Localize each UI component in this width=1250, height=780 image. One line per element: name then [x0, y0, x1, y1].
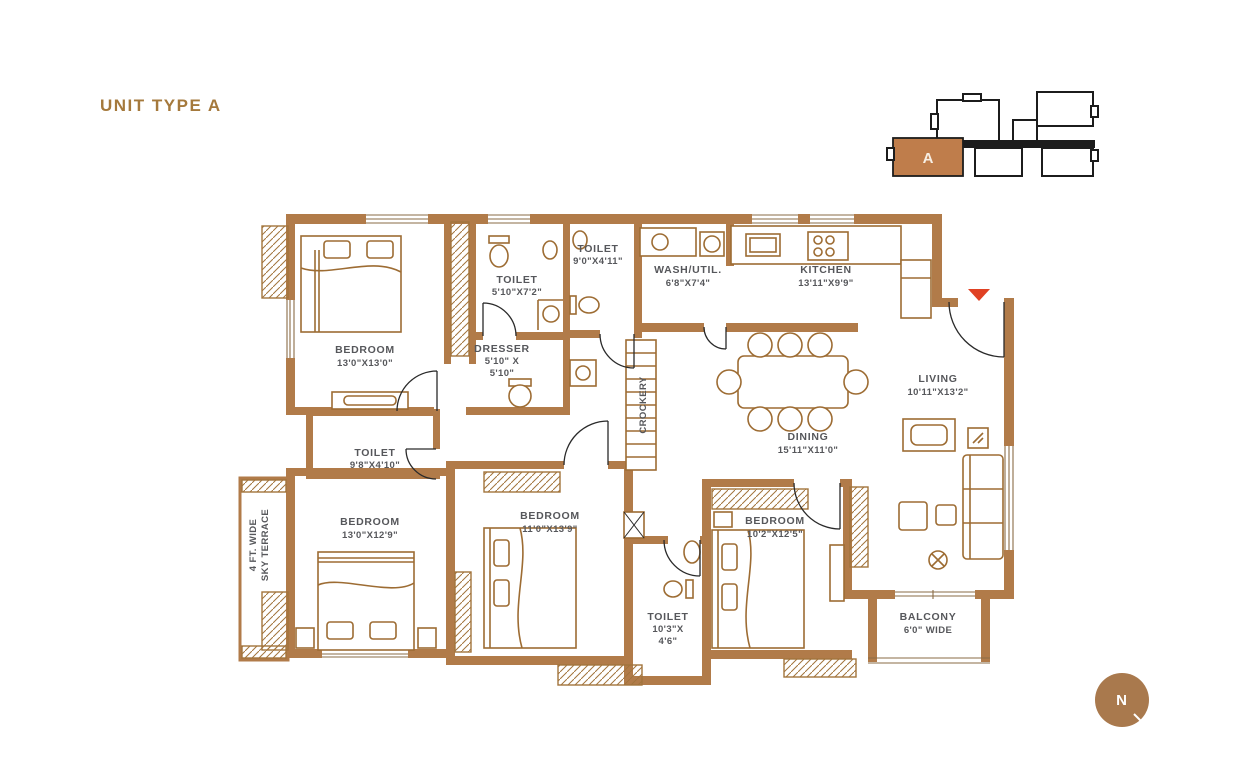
- room-dims-kitchen: 13'11"X9'9": [798, 278, 853, 289]
- room-dims-dresser-2: 5'10": [490, 368, 515, 379]
- wash-counter: [640, 228, 724, 256]
- room-dims-bedroom-4: 10'2"X12'5": [747, 529, 803, 540]
- wall: [446, 461, 564, 469]
- room-label-toilet-1: TOILET: [496, 274, 537, 286]
- wall: [306, 472, 440, 479]
- room-label-bedroom-4: BEDROOM: [745, 515, 805, 527]
- ledge-hatch: [262, 226, 288, 298]
- sliding-door: [895, 590, 975, 599]
- living-art-square: [968, 428, 988, 448]
- wall: [624, 461, 633, 685]
- room-dims-bedroom-3: 11'0"X13'9": [522, 524, 577, 535]
- wall: [516, 332, 570, 340]
- north-compass: N: [1095, 673, 1149, 727]
- living-tv-console: [903, 419, 955, 451]
- wall: [306, 409, 440, 416]
- wall: [563, 332, 570, 415]
- floor-plan-svg: A: [0, 0, 1250, 780]
- room-label-toilet-2: TOILET: [577, 243, 618, 255]
- dining-chair: [778, 333, 802, 357]
- floor-plan-page: UNIT TYPE A A: [0, 0, 1250, 780]
- vanity-basin: [570, 360, 596, 386]
- entry-marker: [968, 289, 990, 301]
- wall: [932, 298, 958, 307]
- wall: [469, 214, 476, 364]
- door-arc: [564, 421, 608, 465]
- wall: [702, 479, 794, 487]
- room-dims-toilet-4-2: 4'6": [659, 636, 678, 647]
- dining-chair: [748, 407, 772, 431]
- wall: [840, 479, 852, 487]
- main-entry-door-arc: [949, 302, 1004, 357]
- wall: [868, 598, 877, 662]
- ledge-hatch: [784, 659, 856, 677]
- key-plan-tab: [887, 148, 894, 160]
- room-dims-toilet-2: 9'0"X4'11": [573, 256, 623, 267]
- dining-table: [717, 333, 868, 431]
- room-label-balcony: BALCONY: [900, 611, 957, 623]
- compass-label: N: [1116, 692, 1128, 709]
- key-plan-corridor: [962, 140, 1095, 148]
- key-plan-unit-label: A: [923, 150, 934, 167]
- dining-chair: [778, 407, 802, 431]
- wall: [975, 590, 1014, 599]
- key-plan-block: [975, 148, 1022, 176]
- room-dims-dining: 15'11"X11'0": [778, 445, 839, 456]
- room-label-wash-util: WASH/UTIL.: [654, 264, 722, 276]
- bedroom-3-bed: [484, 528, 576, 648]
- living-coffee-table: [899, 502, 956, 530]
- room-label-toilet-3: TOILET: [354, 447, 395, 459]
- dresser-stool: [509, 379, 531, 407]
- wall: [444, 214, 451, 364]
- ledge-hatch: [558, 665, 642, 685]
- room-dims-bedroom-1: 13'0"X13'0": [337, 358, 393, 369]
- key-plan-block: [1042, 148, 1093, 176]
- dining-chair: [844, 370, 868, 394]
- room-label-dresser: DRESSER: [474, 343, 530, 355]
- room-dims-toilet-3: 9'8"X4'10": [350, 460, 400, 471]
- room-dims-wash-util: 6'8"X7'4": [666, 278, 711, 289]
- bedroom-1-bed: [301, 236, 401, 332]
- key-plan-block: [1037, 92, 1093, 126]
- wall: [700, 536, 709, 544]
- wardrobe-hatch: [484, 472, 560, 492]
- bedroom-4-dresser: [830, 545, 844, 601]
- room-dims-living: 10'11"X13'2": [907, 387, 968, 398]
- wall: [563, 214, 570, 340]
- room-label-sky-terrace-2: SKY TERRACE: [260, 509, 271, 581]
- wall: [469, 332, 483, 340]
- dining-chair: [748, 333, 772, 357]
- nightstand: [418, 628, 436, 648]
- key-plan-tab: [1091, 150, 1098, 161]
- dining-chair: [717, 370, 741, 394]
- window: [488, 214, 530, 224]
- key-plan-tab: [931, 114, 938, 129]
- window: [1004, 446, 1014, 550]
- key-plan-tab: [1091, 106, 1098, 117]
- key-plan-tab: [963, 94, 981, 101]
- room-label-kitchen: KITCHEN: [800, 264, 852, 276]
- balcony-railing: [868, 658, 990, 663]
- terrace-hatch: [242, 646, 286, 658]
- living-sofa: [963, 455, 1003, 559]
- wardrobe-hatch: [451, 222, 469, 356]
- window: [366, 214, 428, 224]
- window: [286, 300, 295, 358]
- wall: [433, 409, 440, 449]
- duct-shaft: [624, 512, 644, 538]
- key-plan-block: [937, 100, 999, 142]
- room-label-living: LIVING: [918, 373, 957, 385]
- nightstand: [296, 628, 314, 648]
- room-label-bedroom-3: BEDROOM: [520, 510, 580, 522]
- wall: [446, 656, 633, 665]
- toilet-1-basin: [538, 241, 563, 330]
- wall: [702, 479, 711, 685]
- door-arc: [704, 327, 726, 349]
- wall: [466, 407, 570, 415]
- key-plan: A: [887, 92, 1098, 176]
- room-label-toilet-4: TOILET: [647, 611, 688, 623]
- wall: [634, 323, 704, 332]
- wardrobe-hatch: [712, 489, 808, 509]
- dining-chair: [808, 407, 832, 431]
- dining-chair: [808, 333, 832, 357]
- room-label-bedroom-1: BEDROOM: [335, 344, 395, 356]
- toilet-1-wc: [489, 236, 509, 267]
- key-plan-step: [1013, 120, 1037, 142]
- nightstand: [714, 512, 732, 527]
- room-label-crockery: CROCKERY: [638, 376, 649, 433]
- bedroom-2-bed: [296, 552, 436, 650]
- wall: [981, 598, 990, 662]
- room-dims-toilet-4: 10'3"X: [652, 624, 684, 635]
- room-label-sky-terrace-1: 4 FT. WIDE: [248, 519, 259, 572]
- wall: [446, 461, 455, 665]
- toilet-4-wc: [664, 541, 700, 598]
- room-label-bedroom-2: BEDROOM: [340, 516, 400, 528]
- page-title: UNIT TYPE A: [100, 96, 222, 116]
- wall: [306, 409, 313, 479]
- wardrobe-hatch: [455, 572, 471, 652]
- room-dims-bedroom-2: 13'0"X12'9": [342, 530, 398, 541]
- window: [752, 214, 798, 224]
- room-dims-dresser: 5'10" X: [485, 356, 520, 367]
- terrace-hatch: [242, 480, 286, 492]
- ledge-hatch: [262, 592, 288, 650]
- wall: [726, 323, 858, 332]
- room-dims-toilet-1: 5'10"X7'2": [492, 287, 542, 298]
- wall: [563, 330, 600, 338]
- cabinet-hatch: [850, 487, 868, 567]
- window: [810, 214, 854, 224]
- room-dims-balcony: 6'0" WIDE: [904, 625, 952, 636]
- room-label-dining: DINING: [788, 431, 829, 443]
- wall: [702, 650, 852, 659]
- wall: [932, 214, 942, 307]
- kitchen-fridge: [901, 260, 931, 318]
- door-arc: [483, 303, 516, 336]
- living-plant: [929, 551, 947, 569]
